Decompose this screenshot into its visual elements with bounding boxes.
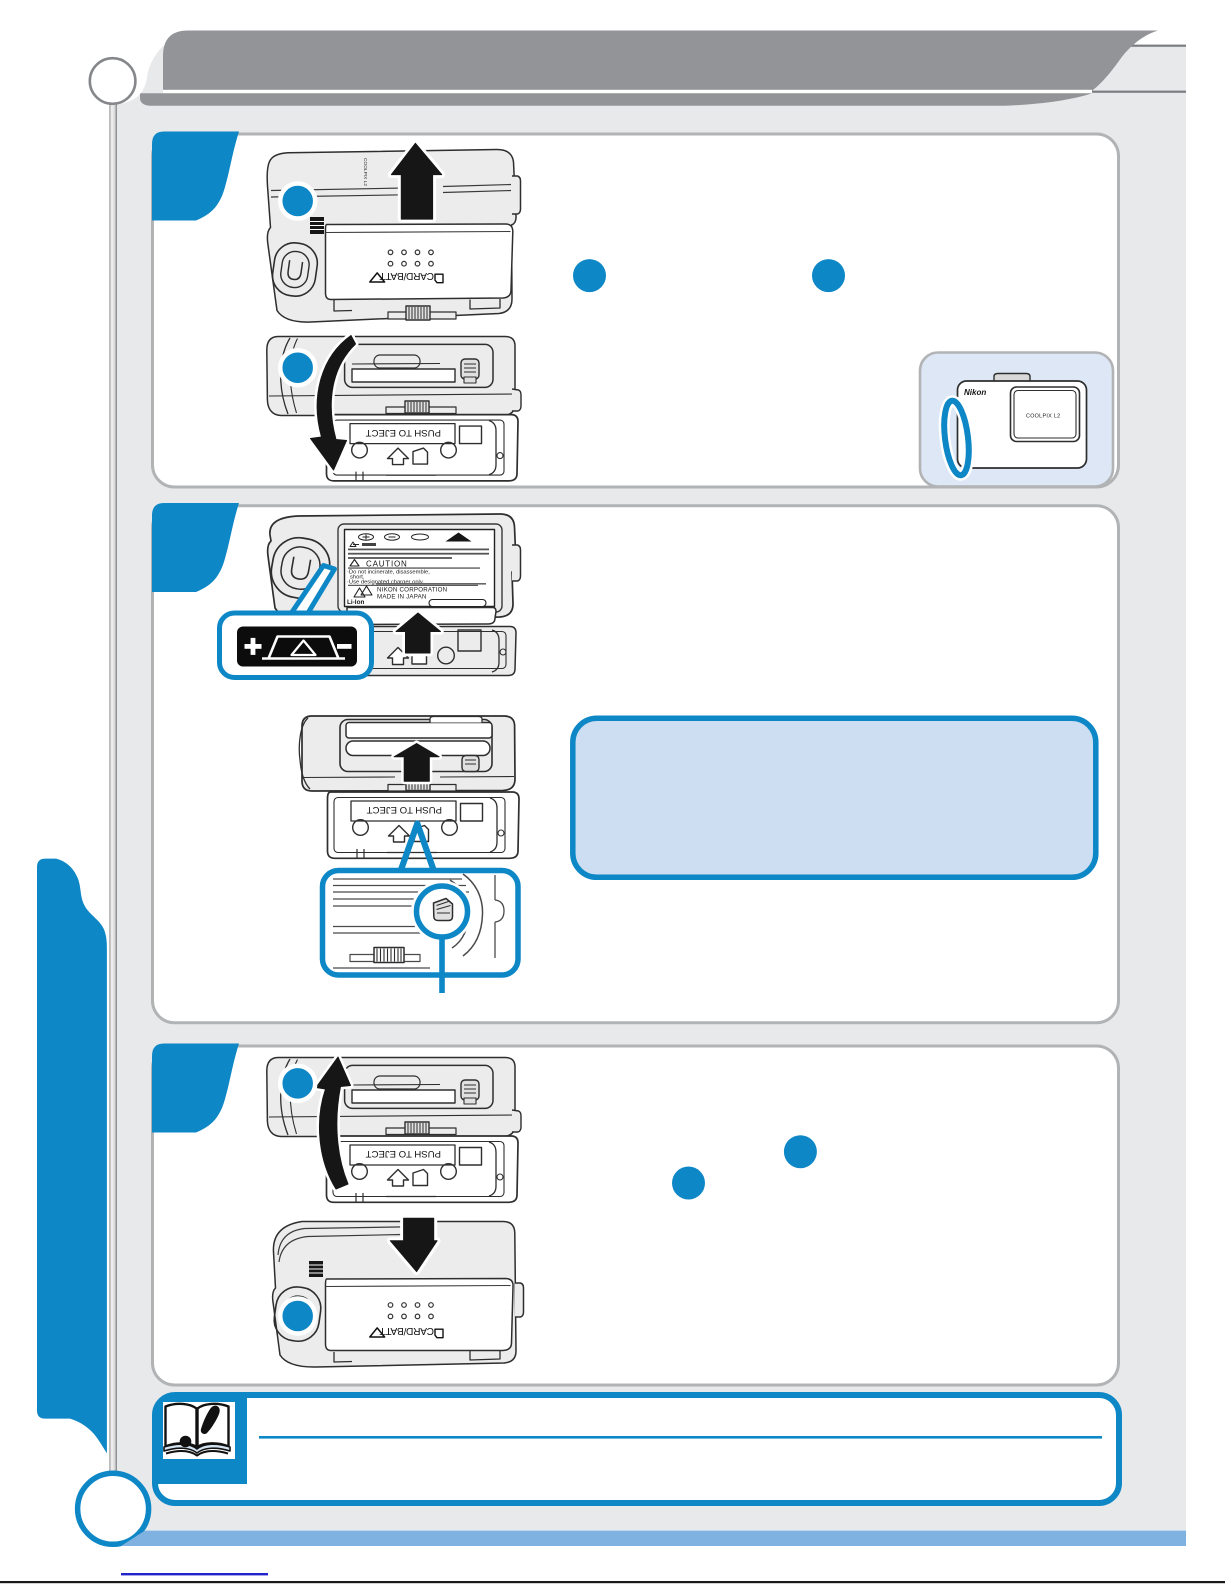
svg-text:NIKON CORPORATION: NIKON CORPORATION	[377, 587, 447, 594]
svg-text:CARD/BATT: CARD/BATT	[380, 1325, 434, 1336]
svg-text:Nikon: Nikon	[964, 388, 986, 397]
svg-text:CARD/BATT: CARD/BATT	[380, 270, 434, 281]
svg-text:CAUTION: CAUTION	[366, 559, 408, 568]
svg-text:COOLPIX L2: COOLPIX L2	[362, 158, 368, 186]
svg-text:COOLPIX L2: COOLPIX L2	[1026, 414, 1060, 420]
svg-text:Li-Ion: Li-Ion	[347, 599, 364, 606]
svg-text:MADE IN JAPAN: MADE IN JAPAN	[377, 594, 427, 601]
